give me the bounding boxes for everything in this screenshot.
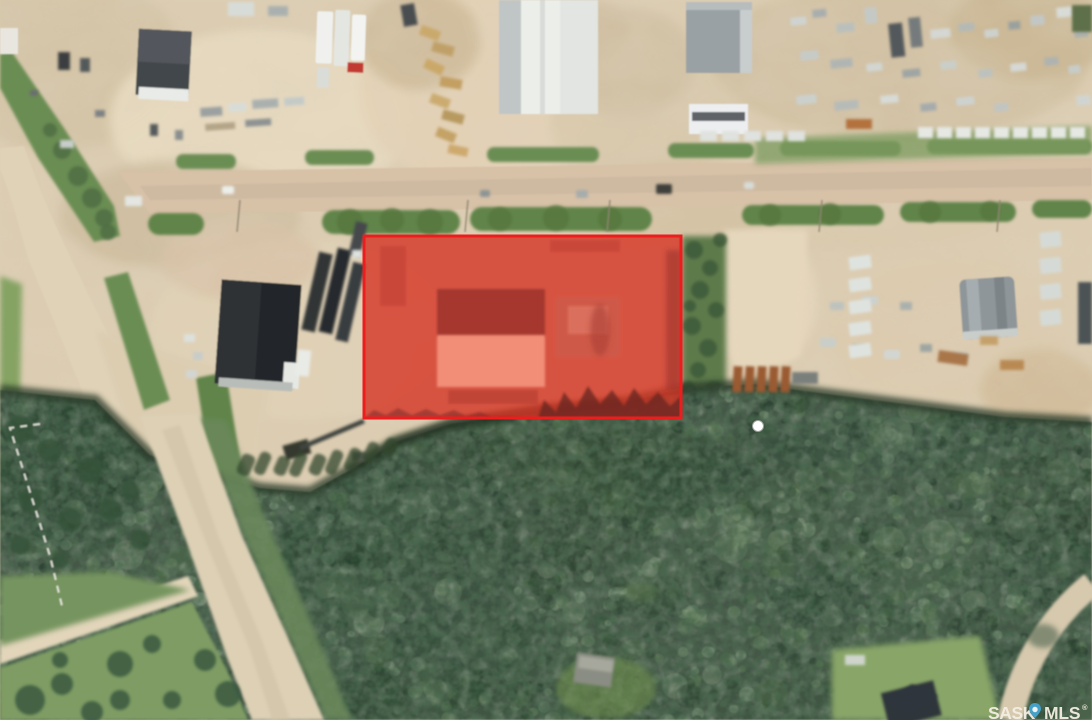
svg-text:SASK: SASK xyxy=(988,703,1036,720)
svg-text:MLS: MLS xyxy=(1044,703,1080,720)
svg-text:®: ® xyxy=(1082,703,1088,712)
